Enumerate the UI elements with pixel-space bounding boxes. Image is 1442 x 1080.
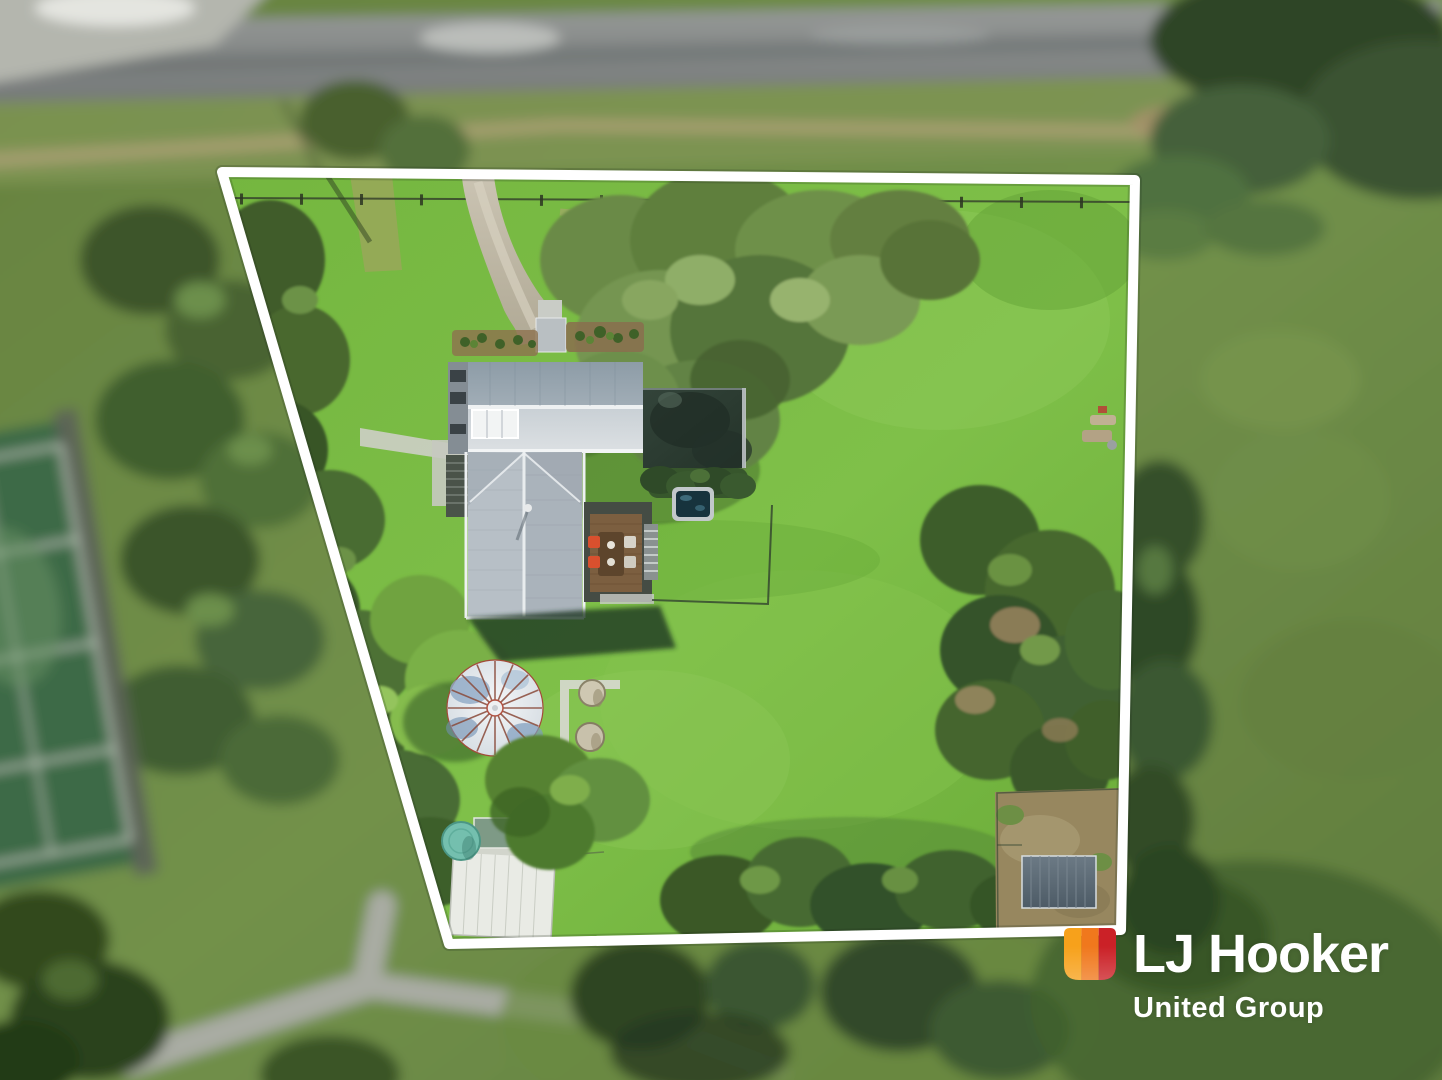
house-roof-gable (466, 452, 584, 618)
skylight (472, 410, 518, 438)
aerial-photo-scene (0, 0, 1442, 1080)
logo-group-name: United Group (1133, 992, 1388, 1025)
deck (584, 502, 658, 604)
spa-pool (672, 487, 714, 521)
roof-vent (524, 504, 532, 512)
red-chair (588, 556, 600, 568)
logo-agency-name: LJ Hooker (1133, 928, 1388, 980)
carport-roof (643, 388, 752, 470)
aerial-photo: LJ Hooker United Group (0, 0, 1442, 1080)
lj-hooker-logo: LJ Hooker United Group (1064, 928, 1388, 1025)
lj-hooker-logo-mark (1064, 928, 1116, 980)
logo-text-column: LJ Hooker United Group (1133, 928, 1388, 1025)
outdoor-table (598, 532, 624, 576)
red-chair (588, 536, 600, 548)
house-roof-upper (468, 362, 643, 453)
garden-shed (536, 318, 566, 352)
dog-run (995, 788, 1121, 936)
